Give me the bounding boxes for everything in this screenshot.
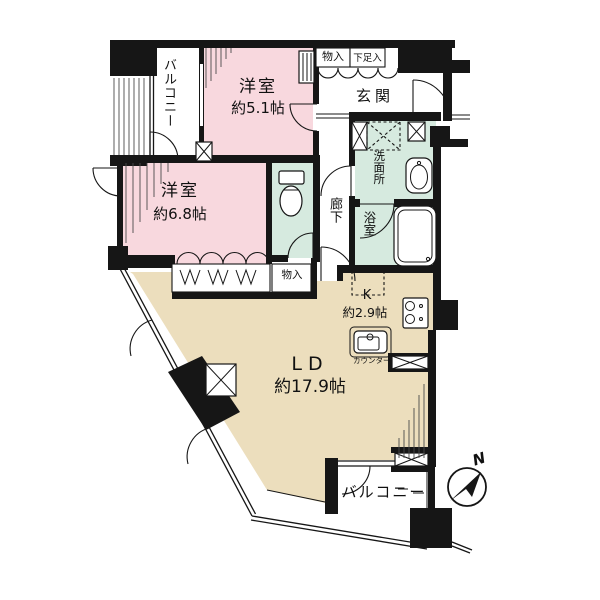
bedroom1-name: 洋室 [210,78,306,98]
bedroom2-window-swing [93,168,121,196]
pipe-space-box-3 [352,122,367,150]
pipe-space-box-5 [392,356,428,369]
living-dining-size: 約17.9帖 [250,378,370,398]
bathroom-label: 浴室 [361,211,375,261]
pipe-space-box-4 [408,122,425,141]
floor-plan: バルコニー 洋室 約5.1帖 物入 下足入 玄関 洗面所 浴室 廊下 洋室 約6… [0,0,600,600]
living-dining-name: LD [280,354,340,376]
pipe-space-box-6 [395,453,428,466]
shoe-box-label: 下足入 [350,54,385,65]
kitchen-size: 約2.9帖 [334,306,396,320]
toilet-icon [279,171,304,216]
hallway-label: 廊下 [326,197,341,249]
compass-icon [448,468,486,506]
bedroom1-size: 約5.1帖 [205,100,311,117]
bedroom2-size: 約6.8帖 [125,206,235,223]
slant-window-swing-1 [130,320,152,356]
balcony-top-label: バルコニー [160,58,175,158]
wash-basin-icon [406,158,432,193]
entrance-closet-label: 物入 [317,51,349,64]
kitchen-name: K [355,289,379,304]
bedroom2-name: 洋室 [130,182,230,202]
pipe-space-box-1 [196,142,212,161]
washroom-label: 洗面所 [372,150,385,202]
slant-window-swing-2 [187,428,209,464]
balcony-bottom-label: バルコニー [336,484,432,501]
kitchen-sink-icon [350,327,391,357]
bathtub-icon [394,206,436,266]
counter-label: カウンター [353,357,391,366]
entrance-label: 玄関 [356,88,394,105]
hall-closet-label: 物入 [274,269,310,281]
washroom-door [321,166,351,196]
stove-icon [403,298,428,328]
